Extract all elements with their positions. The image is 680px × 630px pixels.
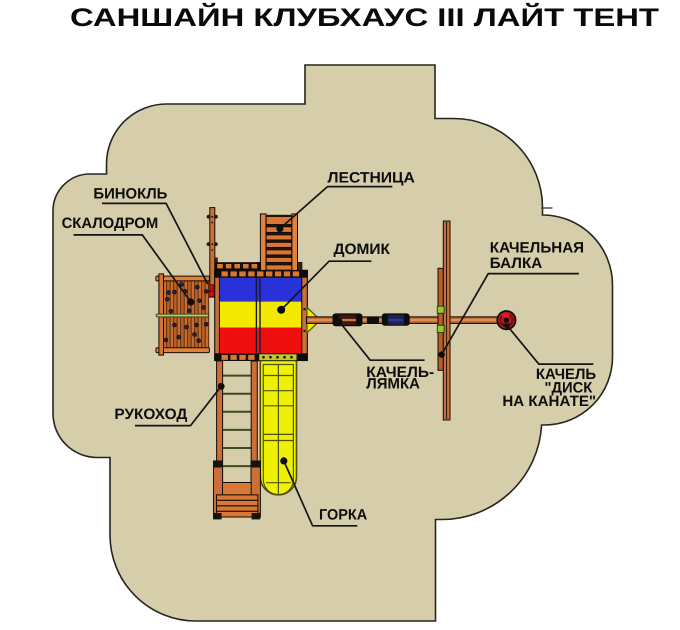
svg-text:КАЧЕЛЬНАЯ: КАЧЕЛЬНАЯ [490, 240, 584, 257]
svg-text:БИНОКЛЬ: БИНОКЛЬ [93, 186, 167, 203]
svg-text:НА КАНАТЕ": НА КАНАТЕ" [502, 393, 596, 410]
svg-text:СКАЛОДРОМ: СКАЛОДРОМ [62, 215, 159, 232]
svg-text:РУКОХОД: РУКОХОД [114, 406, 187, 423]
svg-text:ЛЕСТНИЦА: ЛЕСТНИЦА [328, 170, 415, 187]
svg-text:ГОРКА: ГОРКА [319, 507, 367, 524]
svg-text:БАЛКА: БАЛКА [490, 255, 543, 272]
svg-text:САНШАЙН КЛУБХАУС III ЛАЙТ ТЕНТ: САНШАЙН КЛУБХАУС III ЛАЙТ ТЕНТ [70, 2, 660, 32]
svg-text:ДОМИК: ДОМИК [334, 241, 391, 258]
svg-text:ЛЯМКА: ЛЯМКА [366, 376, 420, 393]
